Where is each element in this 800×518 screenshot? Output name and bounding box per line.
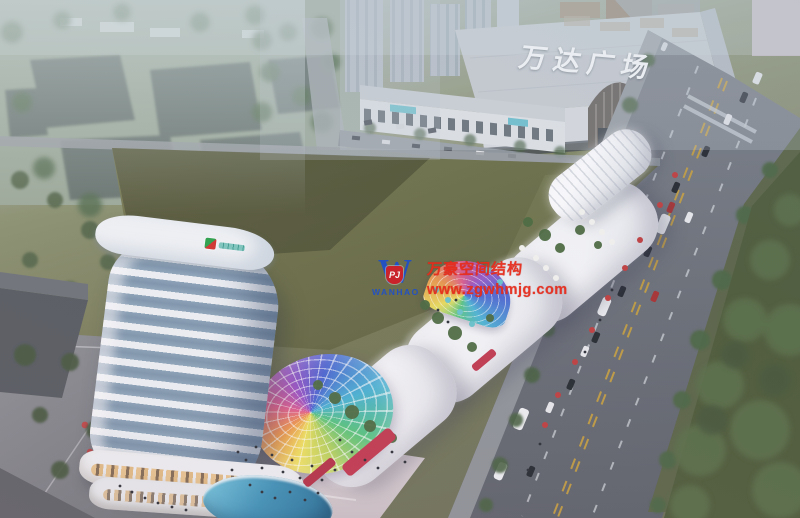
tower-logo-text-shape	[219, 242, 246, 251]
watermark-title: 万豪空间结构	[426, 258, 568, 279]
watermark-logo-badge: PJ	[386, 266, 403, 284]
watermark-logo: W PJ WANHAO	[372, 258, 418, 297]
watermark-text: 万豪空间结构 www.zgwhmjg.com	[427, 258, 568, 298]
aerial-rendering-canvas: 万达广场 W PJ WANHAO 万豪空间结构 www.zgwhmjg.com	[0, 0, 800, 518]
watermark: W PJ WANHAO 万豪空间结构 www.zgwhmjg.com	[372, 258, 568, 298]
watermark-website: www.zgwhmjg.com	[427, 282, 568, 298]
tower-logo-sign	[204, 237, 245, 253]
tower-logo-icon	[204, 237, 216, 249]
tower-building	[85, 218, 300, 518]
watermark-brand-name: WANHAO	[372, 287, 418, 297]
